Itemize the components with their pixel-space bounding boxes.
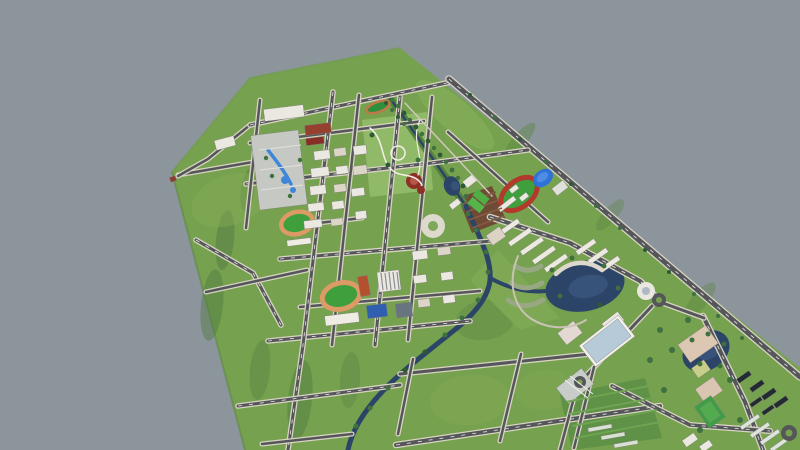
campus-block bbox=[314, 150, 331, 161]
tree bbox=[486, 270, 491, 275]
tree bbox=[476, 298, 481, 303]
tree bbox=[288, 194, 292, 198]
tree bbox=[354, 424, 359, 429]
tree bbox=[493, 115, 497, 119]
tree bbox=[718, 364, 723, 369]
campus-block bbox=[441, 271, 454, 280]
tree bbox=[390, 108, 394, 112]
plaza-pond bbox=[290, 187, 296, 193]
tree bbox=[402, 111, 407, 116]
tree bbox=[468, 93, 472, 97]
tree bbox=[570, 256, 575, 261]
campus-3d-scene[interactable] bbox=[0, 0, 800, 450]
gray-auditorium bbox=[395, 302, 413, 318]
tree bbox=[685, 317, 691, 323]
tree bbox=[402, 122, 406, 126]
tree bbox=[416, 158, 421, 163]
campus-block bbox=[353, 165, 368, 176]
model-viewport[interactable] bbox=[0, 0, 800, 450]
tree bbox=[264, 156, 268, 160]
campus-block bbox=[413, 274, 427, 284]
tree bbox=[408, 118, 412, 122]
roundabout-se-island bbox=[786, 430, 793, 437]
tree bbox=[692, 292, 696, 296]
tree bbox=[368, 406, 373, 411]
tree bbox=[396, 104, 400, 108]
tree bbox=[298, 158, 302, 162]
tree bbox=[737, 417, 743, 423]
tree bbox=[716, 314, 720, 318]
round-tower-core bbox=[642, 287, 650, 295]
main-plaza-complex bbox=[251, 130, 308, 210]
tree bbox=[438, 153, 443, 158]
tree bbox=[423, 350, 428, 355]
tree bbox=[569, 182, 573, 186]
tree bbox=[618, 226, 622, 230]
campus-block bbox=[332, 200, 345, 209]
tree bbox=[426, 139, 431, 144]
tree bbox=[390, 98, 394, 102]
campus-block bbox=[336, 165, 349, 174]
tree bbox=[544, 160, 548, 164]
tree bbox=[698, 362, 703, 367]
tree bbox=[667, 270, 671, 274]
tree bbox=[594, 204, 598, 208]
tree bbox=[432, 146, 436, 150]
tree bbox=[484, 250, 489, 255]
tree bbox=[706, 332, 711, 337]
tree bbox=[558, 294, 563, 299]
campus-block bbox=[334, 147, 347, 156]
tree bbox=[386, 163, 391, 168]
tree bbox=[461, 184, 466, 189]
tree bbox=[690, 338, 695, 343]
tree bbox=[722, 342, 727, 347]
campus-block bbox=[443, 294, 456, 303]
tree bbox=[444, 160, 448, 164]
campus-block bbox=[310, 185, 327, 196]
campus-block bbox=[331, 218, 344, 226]
tree bbox=[460, 316, 465, 321]
tree bbox=[643, 248, 647, 252]
tree bbox=[450, 168, 455, 173]
tree bbox=[697, 427, 703, 433]
tree bbox=[403, 368, 408, 373]
campus-block bbox=[355, 210, 367, 219]
campus-block bbox=[418, 298, 431, 307]
tree bbox=[616, 286, 621, 291]
campus-block bbox=[351, 187, 365, 197]
tree bbox=[270, 174, 274, 178]
roundabout-east-island bbox=[656, 297, 662, 303]
campus-block bbox=[311, 166, 330, 177]
tree bbox=[414, 125, 419, 130]
red-annex bbox=[417, 186, 425, 194]
blue-roof-hall bbox=[366, 303, 387, 318]
tree bbox=[464, 194, 468, 198]
tree bbox=[384, 101, 388, 105]
tree bbox=[661, 387, 667, 393]
tree bbox=[647, 357, 653, 363]
tree bbox=[370, 133, 375, 138]
tree bbox=[657, 327, 663, 333]
tree bbox=[740, 336, 744, 340]
tree bbox=[396, 115, 400, 119]
courtyard-garden bbox=[428, 221, 438, 231]
campus-block bbox=[334, 183, 347, 192]
tree bbox=[420, 132, 424, 136]
tree bbox=[456, 176, 460, 180]
tree bbox=[602, 264, 607, 269]
tree bbox=[518, 137, 522, 141]
campus-block bbox=[437, 246, 451, 256]
tree bbox=[466, 212, 471, 217]
tree bbox=[727, 377, 733, 383]
tree bbox=[669, 347, 675, 353]
campus-block bbox=[412, 250, 428, 261]
campus-block bbox=[308, 202, 325, 212]
tree bbox=[598, 303, 603, 308]
tree bbox=[386, 386, 391, 391]
tree bbox=[474, 228, 479, 233]
tree bbox=[443, 333, 448, 338]
tree bbox=[550, 268, 555, 273]
campus-block bbox=[353, 145, 367, 156]
